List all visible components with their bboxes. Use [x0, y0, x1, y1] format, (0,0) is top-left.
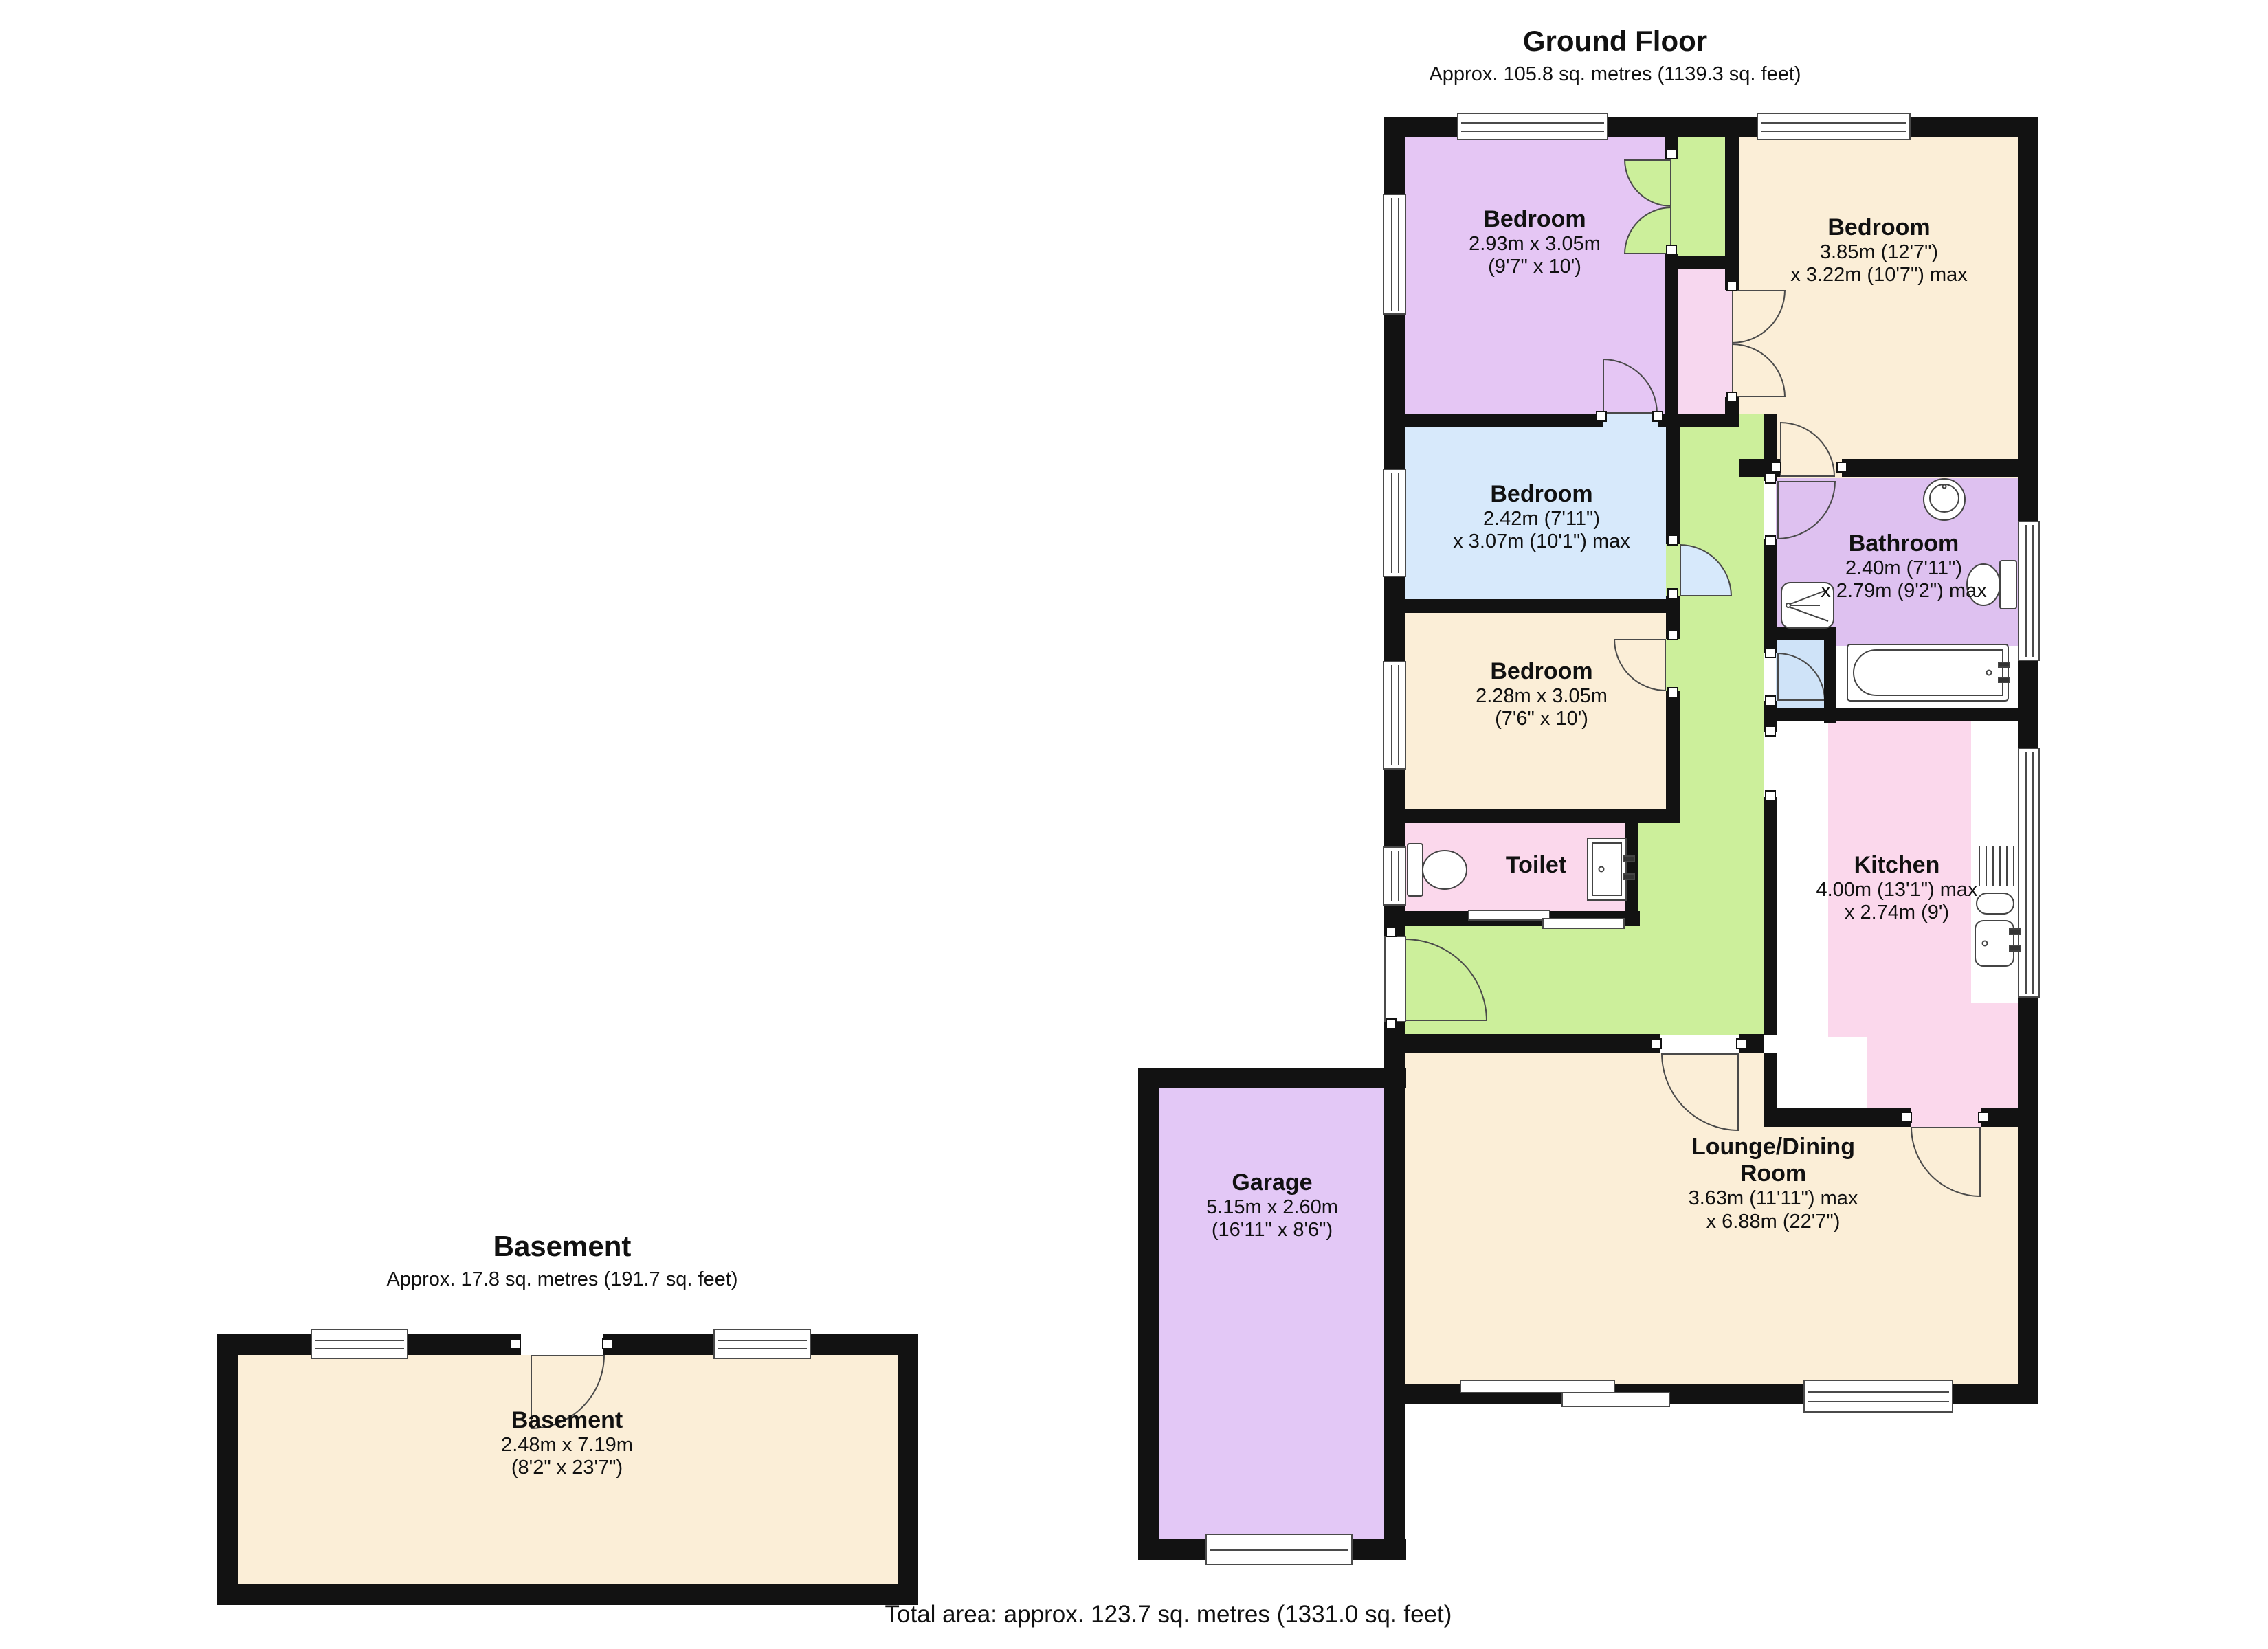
- door-jamb: [1736, 1038, 1747, 1049]
- window: [1383, 661, 1406, 770]
- door-jamb: [1666, 245, 1677, 256]
- label-kitchen: Kitchen 4.00m (13'1") max x 2.74m (9'): [1794, 852, 2000, 925]
- hallway-side: [1638, 823, 1666, 911]
- door-jamb: [602, 1338, 613, 1349]
- basement-subtitle: Approx. 17.8 sq. metres (191.7 sq. feet): [219, 1268, 906, 1291]
- total-area-text: Total area: approx. 123.7 sq. metres (13…: [715, 1601, 1622, 1628]
- door-jamb: [1651, 1038, 1662, 1049]
- front-door-opening: [1384, 936, 1406, 1022]
- patio-sliding-door: [1460, 1380, 1615, 1393]
- ground-floor-subtitle: Approx. 105.8 sq. metres (1139.3 sq. fee…: [1271, 63, 1959, 86]
- wall: [1665, 254, 1678, 414]
- door-jamb: [510, 1338, 521, 1349]
- wall: [1403, 809, 1680, 823]
- patio-sliding-door: [1561, 1392, 1670, 1407]
- basin-icon: [1922, 477, 1967, 522]
- room-garage: [1157, 1087, 1387, 1542]
- door-jamb: [1666, 148, 1677, 159]
- door-jamb: [1978, 1112, 1989, 1123]
- label-bedroom-middle: Bedroom 2.42m (7'11") x 3.07m (10'1") ma…: [1403, 481, 1680, 554]
- window: [1383, 194, 1406, 315]
- door-jamb: [1765, 535, 1776, 546]
- ground-floor-title: Ground Floor: [1271, 25, 1959, 58]
- label-bedroom-top-right: Bedroom 3.85m (12'7") x 3.22m (10'7") ma…: [1737, 214, 2021, 287]
- door-jamb: [1386, 926, 1397, 937]
- window: [2018, 521, 2040, 661]
- door-jamb: [1765, 695, 1776, 706]
- label-lounge-dining: Lounge/Dining Room 3.63m (11'11") max x …: [1533, 1134, 2014, 1233]
- wall: [217, 1334, 238, 1605]
- window: [1803, 1380, 1953, 1413]
- door-jamb: [1765, 647, 1776, 658]
- wall: [1725, 135, 1739, 272]
- door-jamb: [1765, 473, 1776, 484]
- label-garage: Garage 5.15m x 2.60m (16'11" x 8'6"): [1157, 1169, 1387, 1242]
- label-bathroom: Bathroom 2.40m (7'11") x 2.79m (9'2") ma…: [1787, 530, 2021, 603]
- door-jamb: [1667, 629, 1678, 640]
- label-basement: Basement 2.48m x 7.19m (8'2" x 23'7"): [236, 1407, 898, 1480]
- door-jamb: [1765, 726, 1776, 737]
- door-jamb: [1901, 1112, 1912, 1123]
- wall: [1764, 708, 2021, 721]
- window: [1383, 846, 1406, 906]
- door-jamb: [1652, 411, 1663, 422]
- wall: [1764, 1108, 1911, 1127]
- window: [1457, 113, 1608, 140]
- wall: [898, 1334, 918, 1605]
- door-jamb: [1386, 1018, 1397, 1029]
- door-jamb: [1667, 588, 1678, 599]
- label-bedroom-top-left: Bedroom 2.93m x 3.05m (9'7" x 10'): [1403, 206, 1666, 279]
- wall: [1403, 599, 1680, 613]
- door-jamb: [1726, 280, 1737, 291]
- basement-title-block: Basement Approx. 17.8 sq. metres (191.7 …: [219, 1230, 906, 1291]
- label-toilet: Toilet: [1450, 852, 1622, 879]
- wall: [1764, 1053, 1777, 1108]
- wall: [1384, 1404, 1405, 1560]
- wall: [1138, 1068, 1159, 1560]
- basement-title: Basement: [219, 1230, 906, 1263]
- wall: [1403, 414, 1603, 427]
- door-jamb: [1770, 462, 1781, 473]
- label-bedroom-small: Bedroom 2.28m x 3.05m (7'6" x 10'): [1403, 658, 1680, 731]
- wall: [1138, 1068, 1406, 1088]
- bath-icon: [1846, 643, 2011, 702]
- window: [311, 1329, 408, 1359]
- wall: [1764, 797, 1777, 1035]
- sliding-door: [1542, 918, 1625, 929]
- wall: [1842, 459, 2021, 477]
- ground-floor-title-block: Ground Floor Approx. 105.8 sq. metres (1…: [1271, 25, 1959, 86]
- window: [713, 1329, 811, 1359]
- garage-door: [1205, 1534, 1353, 1565]
- floor-plan: Ground Floor Approx. 105.8 sq. metres (1…: [0, 0, 2268, 1649]
- basement-door-opening: [521, 1334, 603, 1355]
- door-jamb: [1765, 790, 1776, 801]
- door-jamb: [1836, 462, 1847, 473]
- window: [1383, 469, 1406, 577]
- door-jamb: [1596, 411, 1607, 422]
- sliding-door: [1468, 910, 1550, 921]
- window: [1757, 113, 1911, 140]
- wall: [1384, 1034, 1660, 1053]
- door-jamb: [1726, 392, 1737, 403]
